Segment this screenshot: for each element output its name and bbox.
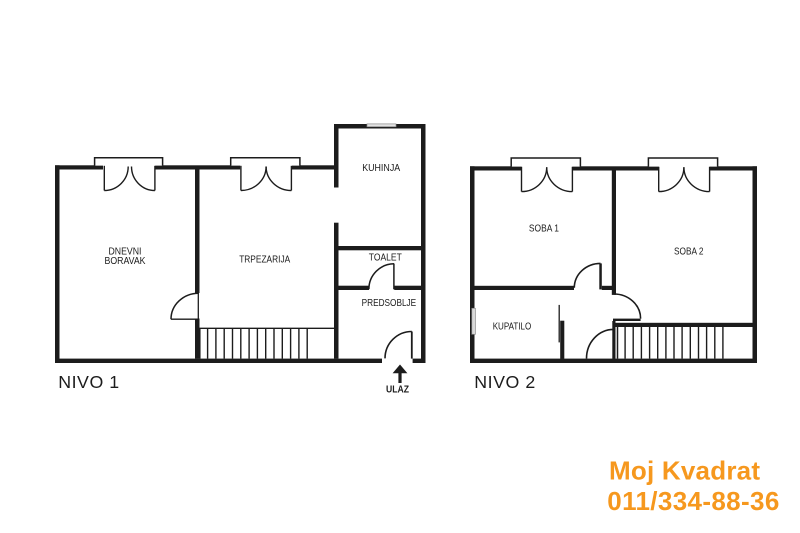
svg-text:PREDSOBLJE: PREDSOBLJE bbox=[362, 298, 417, 309]
svg-text:KUPATILO: KUPATILO bbox=[493, 321, 532, 332]
svg-text:BORAVAK: BORAVAK bbox=[105, 256, 146, 267]
svg-text:SOBA 2: SOBA 2 bbox=[674, 247, 704, 258]
svg-text:SOBA 1: SOBA 1 bbox=[529, 223, 559, 234]
svg-text:Moj Kvadrat: Moj Kvadrat bbox=[609, 456, 760, 486]
svg-text:KUHINJA: KUHINJA bbox=[362, 163, 400, 174]
svg-text:NIVO 1: NIVO 1 bbox=[58, 372, 119, 392]
svg-text:011/334-88-36: 011/334-88-36 bbox=[607, 486, 779, 516]
svg-text:TRPEZARIJA: TRPEZARIJA bbox=[239, 255, 290, 266]
svg-text:NIVO 2: NIVO 2 bbox=[474, 372, 535, 392]
svg-text:ULAZ: ULAZ bbox=[386, 384, 409, 395]
svg-text:TOALET: TOALET bbox=[369, 252, 402, 263]
